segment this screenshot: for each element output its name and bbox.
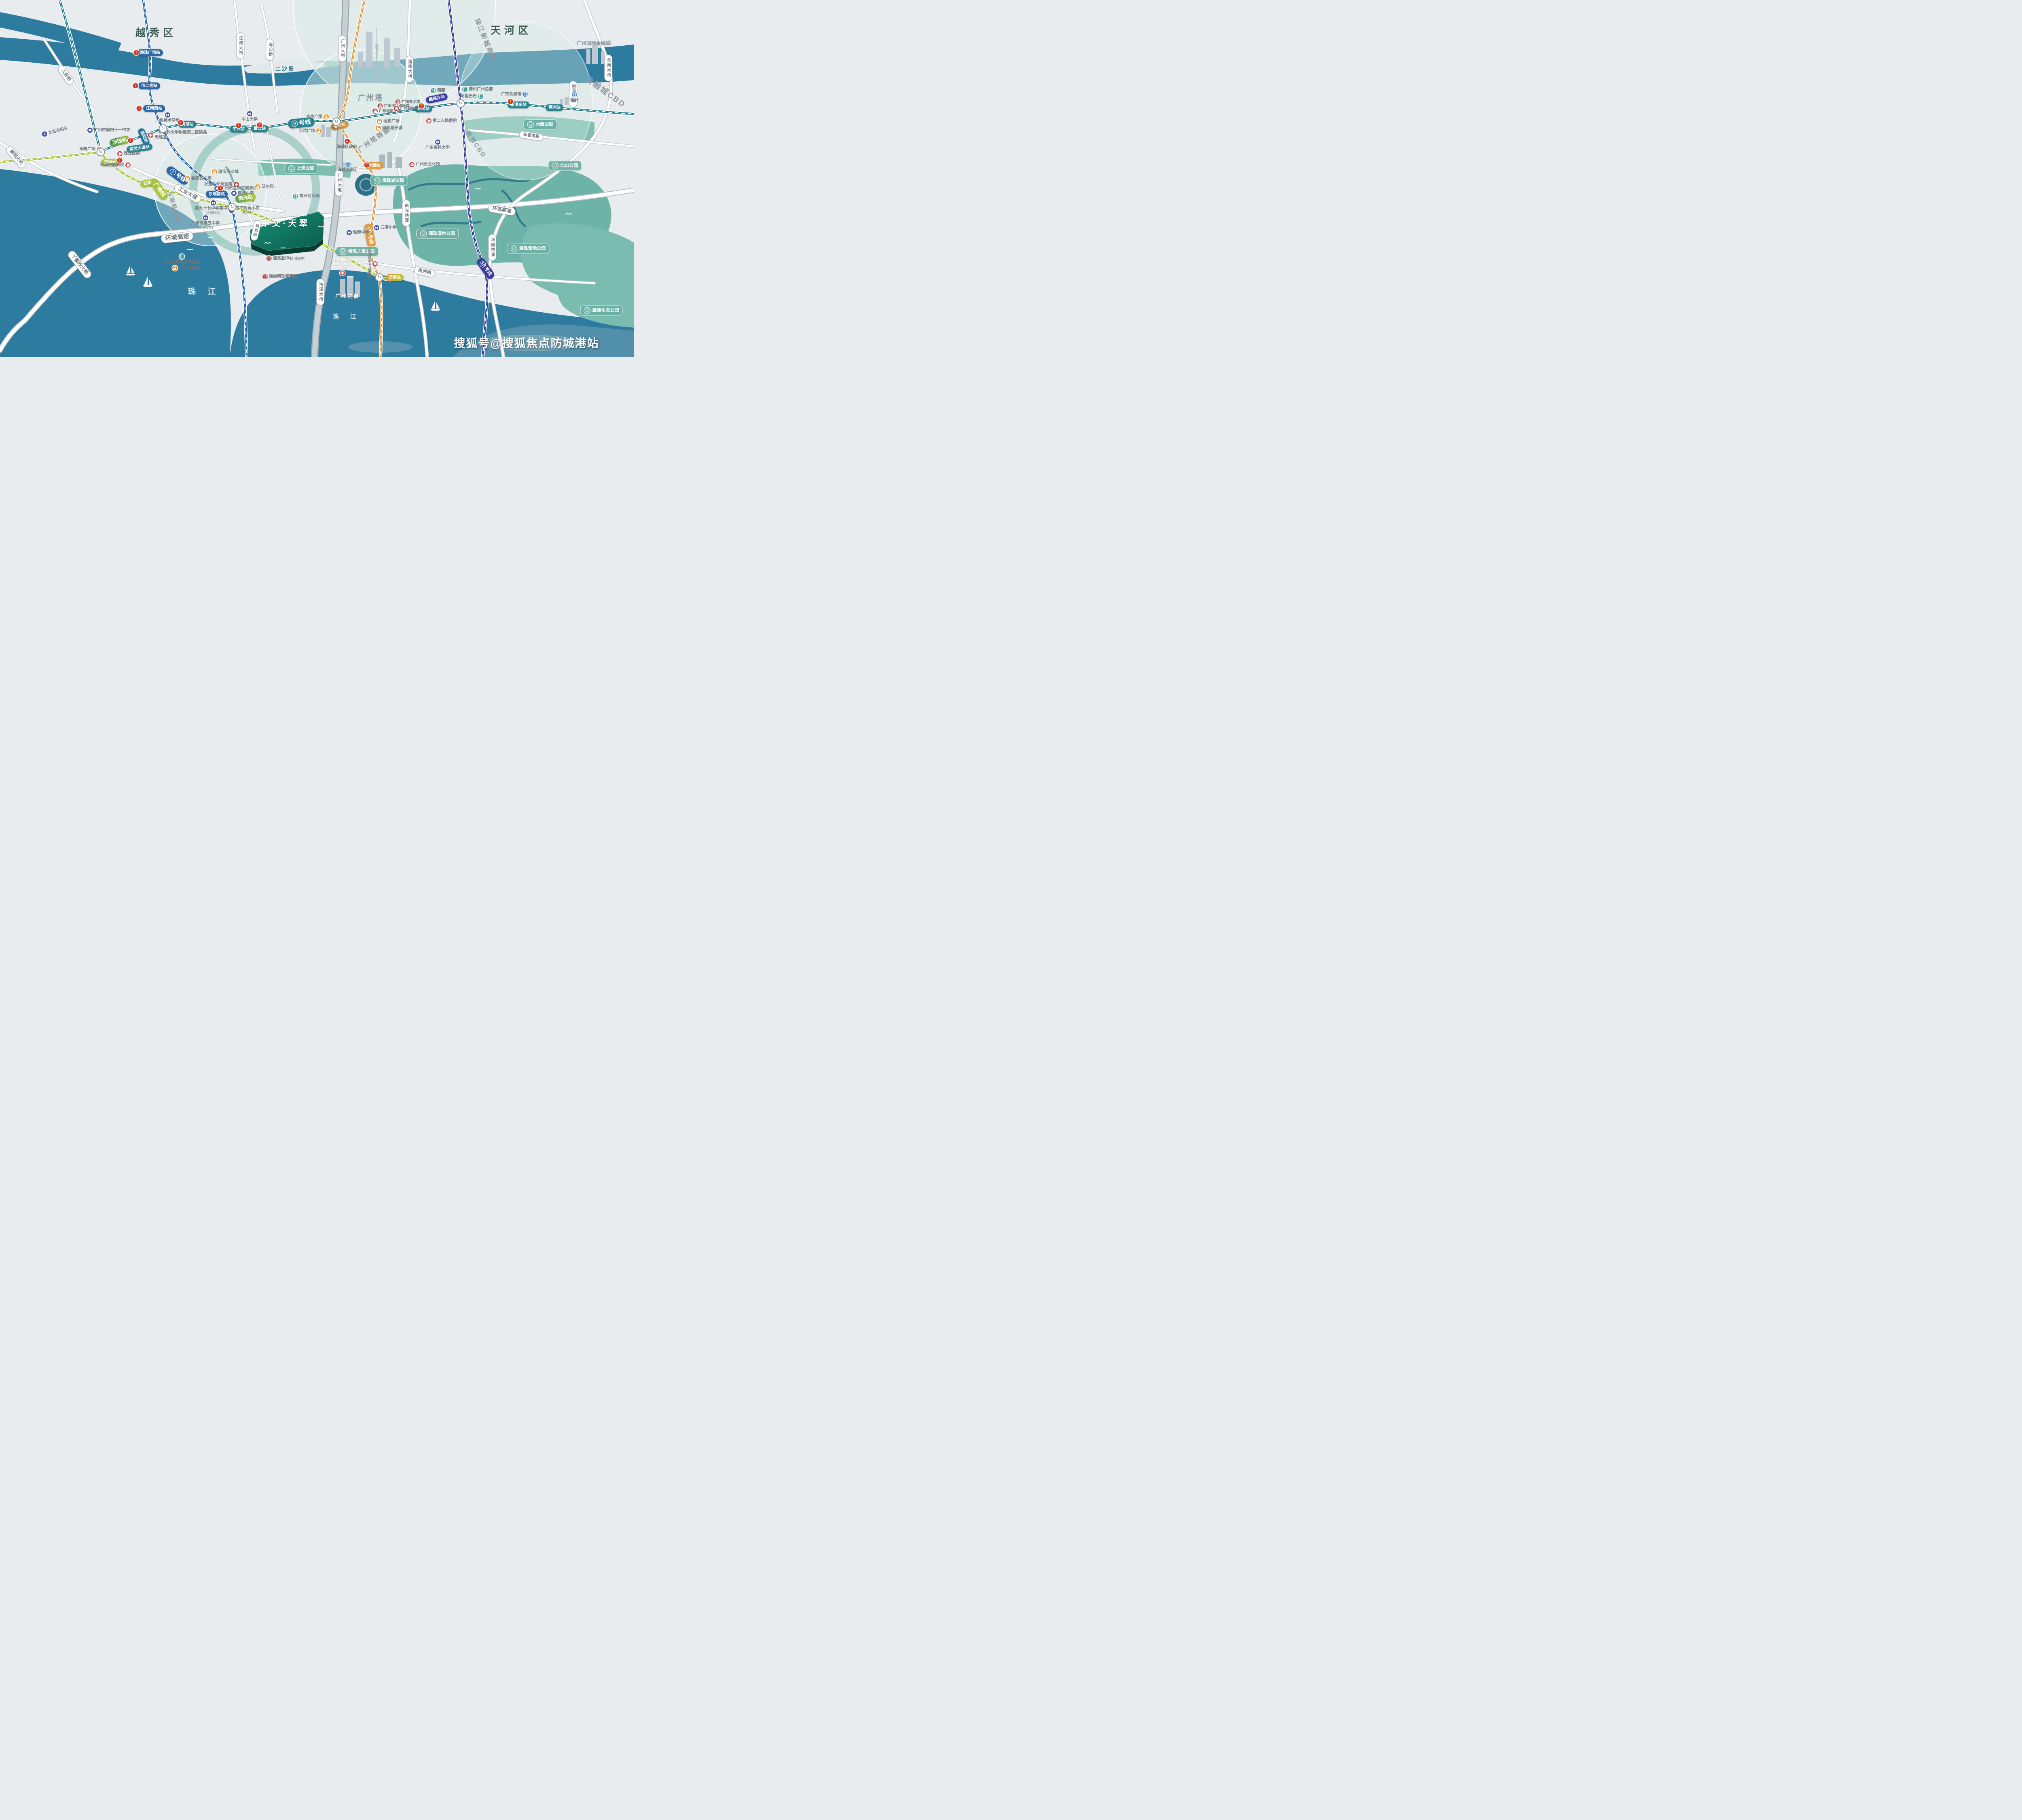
roundabout-icon: [332, 118, 341, 126]
tree-icon: [511, 245, 518, 252]
school-icon: [211, 200, 216, 205]
canton-tower-label-text: 广州塔: [357, 94, 383, 103]
road-guihua-road: 规划路: [250, 220, 262, 241]
mall-icon: [377, 119, 382, 124]
museum-icon: [372, 109, 378, 114]
poi-nanwu-primary: 南武小学: [231, 191, 254, 196]
poi-zhujiang-hospital: 珠江医院: [117, 151, 140, 157]
badge-line3-text: 号线: [367, 234, 374, 245]
road-xinguang-expwy: 新光快速: [402, 200, 410, 226]
park-haizhu-wetland-west-text: 海珠湿地公园: [429, 231, 455, 237]
poi-grandbuy-haigang-city-text: 广百海港城: [179, 266, 199, 271]
bldgteal-icon: [180, 254, 185, 259]
hospital-icon: [148, 133, 153, 138]
park-haizhu-lake: 海珠湖公园: [370, 176, 408, 186]
museum-icon: [377, 104, 383, 109]
interchange-icon: [236, 123, 241, 128]
bldgteal-icon: [462, 87, 467, 92]
poi-kaisa-center: 佳兆业中心(建设中): [266, 256, 305, 261]
watermark: 搜狐号@搜狐焦点防城港站: [454, 337, 599, 350]
interchange-icon: [134, 50, 139, 55]
tree-icon: [340, 248, 347, 255]
area-dongxiaonan-circle-text: 东晓南商圈: [166, 191, 182, 224]
poi-nanzhou-startup-park-text: 南洲创业园: [299, 194, 319, 199]
park-beishan: 北山公园: [548, 161, 582, 171]
station-shiergong: 市二宫站: [138, 83, 160, 89]
bldgblue-icon: [345, 162, 351, 167]
station-dongxiaonan: 东晓南站: [206, 191, 228, 198]
hospital-icon: [340, 270, 345, 275]
bridge-haiyin-text: 海印桥: [267, 42, 272, 57]
district-tianhe-text: 天河区: [491, 25, 532, 37]
station-dongxiaonan-text: 东晓南站: [209, 192, 225, 197]
park-yingzhou-eco: 瀛洲生态公园: [580, 306, 623, 316]
poi-qulao-middle-school-text: 劬劳中学: [353, 230, 369, 235]
bridge-yajisha: 丫髻沙大桥: [67, 249, 93, 279]
tree-icon: [288, 165, 295, 172]
park-yingzhou-eco-text: 瀛洲生态公园: [592, 308, 619, 313]
station-lijiao-text: 沥滘站: [389, 275, 401, 280]
bldgred-icon: [266, 256, 272, 261]
station-shiergong-text: 市二宫站: [141, 83, 157, 88]
road-guihua-road-text: 规划路: [252, 224, 260, 238]
mall-icon: [324, 114, 329, 120]
line-number: 8: [291, 120, 298, 127]
bridge-luoxi-text: 洛溪大桥: [318, 282, 323, 302]
area-ersha-island-text: 二沙岛: [275, 66, 295, 72]
station-jiangnanxi: 江南西站: [143, 105, 165, 112]
park-shangchong: 上涌公园: [285, 164, 318, 174]
poi-ruibao-commercial-city: 瑞宝商业城: [212, 169, 239, 175]
school-icon: [347, 230, 352, 235]
project-badge-text: 中交·天翠: [261, 219, 310, 229]
anchor-icon: [41, 131, 48, 138]
poi-sun-yat-sen-university-text: 中山大学: [241, 117, 258, 122]
bridge-huanan-text: 华南大桥: [606, 58, 611, 78]
station-baogang-avenue-text: 宝岗大道站: [129, 144, 150, 152]
bridge-hedong: 鹤洞大桥: [5, 145, 27, 169]
area-dongxiaonan-circle: 东晓南商圈: [166, 191, 182, 224]
poi-no97-high-school-subtext: (金碧校区): [195, 211, 231, 215]
bridge-guangzhou-text: 广州大桥: [340, 39, 345, 58]
park-haizhu-lake-text: 海珠湖公园: [382, 178, 404, 184]
bridge-liede: 猎德大桥: [405, 56, 413, 83]
poi-second-peoples-hospital: 第二人民医院: [426, 119, 457, 124]
station-datang-text: 大塘站: [368, 163, 380, 168]
poi-haizhu-women-children-hospital-text: 海珠区妇女儿童医院: [368, 249, 372, 278]
poi-haizhu-district-govt: 海珠区政府: [337, 139, 357, 150]
water-label-zhujiang-south-text: 珠 江: [333, 313, 361, 320]
poi-haizhu-district-govt-text: 海珠区政府: [337, 145, 357, 150]
poi-sun-yat-sen-university: 中山大学: [241, 111, 258, 122]
park-dawei-text: 大围公园: [536, 122, 554, 127]
area-gz-intl-finance-city-text: 广州国际金融城·: [577, 41, 612, 47]
bridge-jiangwan: 江湾大桥: [236, 32, 244, 59]
poi-no97-high-school-text: 第九十七中学高中部(金碧校区): [195, 206, 231, 215]
roundabout-icon: [228, 203, 237, 212]
museum-icon: [409, 162, 415, 167]
bldgteal-icon: [293, 194, 298, 199]
poi-no41-middle-school-text: 广州市第四十一中学: [94, 128, 133, 133]
badge-line8-text: 号线: [298, 119, 311, 127]
poi-kaisa-center-text: 佳兆业中心(建设中): [273, 256, 305, 261]
poi-no5-middle-school: 广州市第五中学(金碧校区): [191, 215, 220, 230]
road-huanan-expwy-text: 华南快速: [490, 238, 495, 257]
road-gongye-avenue-text: 工业大道: [177, 186, 199, 201]
badge-line18-text: 号线: [483, 267, 493, 277]
mall-icon: [212, 169, 217, 175]
road-nanzhou-road: 南洲路: [413, 266, 436, 278]
poi-sanjiao-primary: 三滘小学: [374, 225, 397, 231]
station-shayuan-text: 沙园站: [112, 137, 127, 146]
district-yuexiu: 越秀区: [135, 28, 177, 39]
poi-lefeng-plaza-text: 乐峰广场: [79, 147, 95, 152]
poi-guangdong-medical-univ: 广东医科大学: [425, 140, 450, 150]
area-gz-intl-finance-city: 广州国际金融城·: [577, 41, 612, 47]
interchange-icon: [364, 163, 370, 168]
poi-gz-culture-center: 广州市文化馆: [409, 162, 440, 167]
area-pazhou-cbd-text: 琶洲CBD: [464, 129, 488, 159]
poi-canton-fair-complex-text: 广交会展馆: [501, 92, 521, 97]
water-label-zhujiang-west-text: 珠 江: [188, 288, 221, 297]
poi-tencent-gz-hq-text: 腾讯广州总部: [469, 87, 493, 92]
interchange-icon: [419, 104, 424, 109]
poi-taikoo-wharf: 太古仓码头: [41, 126, 68, 138]
poi-wanda-plaza-text: 万达广场: [299, 129, 315, 133]
water-label-zhujiang-south: 珠 江: [333, 313, 361, 320]
poi-alibaba-text: 阿里巴巴: [461, 94, 477, 99]
poi-ruibao-commercial-city-text: 瑞宝商业城: [218, 169, 239, 174]
bridge-renmin-text: 人民桥: [60, 68, 72, 82]
road-nanzhou-road-text: 南洲路: [418, 268, 432, 276]
poi-pati-text: 琶醍: [437, 88, 445, 93]
hospital-icon: [372, 261, 378, 267]
poi-hopson-plaza-text: 合生广场: [306, 114, 322, 119]
hospital-icon: [125, 163, 131, 168]
school-icon: [374, 225, 379, 231]
interchange-icon: [137, 106, 142, 111]
museum-icon: [395, 99, 400, 105]
roundabout-icon: [375, 273, 384, 282]
station-lijiao: 沥滘站: [386, 274, 404, 281]
watermark-text: 搜狐号@搜狐焦点防城港站: [454, 337, 599, 350]
bldgteal-icon: [431, 88, 436, 93]
poi-window-of-guangzhou-text: 广州之窗: [335, 294, 360, 300]
poi-grandbuy-haigang-city: 广百海港城: [172, 266, 199, 271]
poi-nanzhou-startup-park: 南洲创业园: [293, 194, 319, 199]
poi-gz-fine-arts-academy: 广州美术学院: [155, 112, 180, 123]
poi-sun-yat-sen-hospital-haizhuwan: 孙逸仙医院海珠湾院区(在建): [332, 258, 352, 276]
poi-taikoo-wharf-text: 太古仓码头: [48, 126, 68, 135]
project-badge: 中交·天翠: [261, 219, 310, 229]
poi-no97-high-school: 第九十七中学高中部(金碧校区): [195, 200, 231, 215]
poi-alibaba: 阿里巴巴: [461, 94, 483, 99]
area-zhujiang-xincheng-circle-text: 珠江新城商圈: [473, 18, 497, 63]
poi-qulao-middle-school: 劬劳中学: [347, 230, 369, 235]
poi-pazhou: 琶洲: [570, 92, 578, 103]
poi-walmart-text: 沃尔玛: [262, 184, 274, 189]
poi-sun-yat-sen-hospital-haizhuwan-subtext: (在建): [332, 266, 352, 269]
poi-shixi-tcm-hospital: 石溪中医医院: [100, 163, 131, 168]
boat-icon: [430, 299, 441, 311]
mall-icon: [172, 266, 178, 271]
poi-big-haizhuwan-art-park: BIG海珠湾艺术园区: [164, 254, 200, 265]
park-shangchong-text: 上涌公园: [297, 166, 315, 171]
bridge-haiyin: 海印桥: [266, 39, 274, 61]
poi-nanwu-primary-text: 南武小学: [238, 191, 254, 196]
park-haizhu-wetland-west: 海珠湿地公园: [417, 229, 459, 239]
school-icon: [165, 112, 170, 118]
canton-tower-label: 广州塔: [357, 94, 383, 103]
road-xinjiao-east-road: 新窖东路: [519, 131, 544, 142]
poi-haishang-mingzhu-park-text: 海尚明珠智慧园: [269, 274, 297, 279]
poi-canton-fair-complex: 广交会展馆: [501, 92, 528, 97]
bldgblue-icon: [572, 92, 577, 97]
interchange-icon: [508, 99, 513, 104]
district-tianhe: 天河区: [491, 25, 532, 37]
tree-icon: [552, 163, 559, 169]
poi-shixi-tcm-hospital-text: 石溪中医医院: [100, 163, 124, 167]
poi-zhuying-starlight-city-text: 珠影星光城: [382, 126, 402, 131]
mall-icon: [316, 129, 321, 134]
poi-no5-middle-school-text: 广州市第五中学(金碧校区): [191, 221, 220, 230]
roundabout-icon: [457, 99, 465, 108]
park-dawei: 大围公园: [524, 120, 557, 130]
station-haizhu-square: 海珠广场站: [137, 49, 163, 56]
station-jiangnanxi-text: 江南西站: [146, 106, 162, 111]
park-haizhu-wetland-east: 海珠湿地公园: [507, 244, 550, 254]
poi-tower-south-plaza-text: 广州塔南广场: [379, 109, 401, 113]
poi-xindouhui-plaza: 新都荟广场: [185, 176, 212, 182]
bridge-hedong-text: 鹤洞大桥: [8, 149, 24, 166]
poi-wuzhong-dongxiao-school-text: 广州市五中东晓学校: [221, 186, 257, 191]
poi-hopson-plaza: 合生广场: [306, 114, 329, 120]
area-ersha-island: 二沙岛: [275, 66, 295, 72]
interchange-icon: [178, 120, 184, 125]
hospital-icon: [426, 119, 431, 124]
poi-kaisa-center-subtext: (建设中): [294, 256, 305, 260]
road-huancheng-expwy-west-text: 环城高速: [165, 233, 189, 242]
mall-icon: [185, 176, 190, 182]
road-xinguang-expwy-text: 新光快速: [404, 203, 408, 223]
poi-pati: 琶醍: [431, 88, 445, 93]
road-huancheng-expwy-east: 环城高速: [488, 204, 516, 216]
poi-haishang-mingzhu-park: 海尚明珠智慧园: [262, 274, 297, 279]
station-modiesha: 磨碟沙站: [425, 93, 448, 104]
tree-icon: [584, 307, 591, 314]
poi-gz-art-museum: 广州美术馆: [395, 99, 420, 105]
station-modiesha-text: 磨碟沙站: [428, 94, 445, 102]
bldgblue-icon: [522, 92, 528, 97]
station-changgang-text: 昌岗站: [140, 130, 149, 143]
bldgred-icon: [262, 274, 268, 279]
station-pazhou-text: 琶洲站: [548, 105, 560, 110]
poi-gz-culture-center-text: 广州市文化馆: [416, 162, 440, 167]
poi-sanjiao-primary-text: 三滘小学: [381, 225, 397, 230]
poi-wuzhong-affiliated-primary-subtext: (规划中): [235, 211, 260, 214]
poi-big-haizhuwan-art-park-text: BIG海珠湾艺术园区: [164, 260, 200, 265]
tree-icon: [420, 231, 427, 237]
school-icon: [231, 191, 237, 196]
poi-walmart: 沃尔玛: [255, 184, 274, 190]
poi-haizhu-tongchuanghui: 海珠同创汇: [338, 162, 358, 173]
school-icon: [247, 111, 252, 116]
station-xingangdong-text: 新港东站: [510, 102, 527, 107]
bridge-guangzhou: 广州大桥: [338, 35, 346, 62]
poi-no41-middle-school: 广州市第四十一中学: [87, 128, 133, 133]
poi-gz-art-museum-text: 广州美术馆: [402, 100, 420, 104]
poi-guangdong-medical-univ-text: 广东医科大学: [425, 146, 450, 150]
interchange-icon: [117, 158, 123, 163]
road-huancheng-expwy-west: 环城高速: [161, 231, 194, 243]
poi-zhujiang-hospital-text: 珠江医院: [124, 151, 140, 156]
tree-icon: [374, 178, 381, 184]
map-labels: 越秀区天河区二沙岛广州国际金融城·金融城CBD琶洲CBD珠江新城商圈广州塔商圈东…: [0, 0, 634, 357]
road-guangzhou-avenue: 广州大道: [335, 169, 343, 196]
station-shayuan: 沙园站: [109, 135, 130, 147]
bridge-liede-text: 猎德大桥: [407, 59, 412, 79]
mall-icon: [376, 126, 381, 131]
school-icon: [203, 215, 208, 220]
poi-second-peoples-hospital-text: 第二人民医院: [433, 119, 457, 123]
poi-pazhou-text: 琶洲: [570, 98, 578, 103]
mall-icon: [255, 184, 260, 190]
park-haizhu-wetland-east-text: 海珠湿地公园: [519, 246, 546, 252]
poi-wanda-plaza: 万达广场: [299, 129, 321, 134]
boat-icon: [125, 264, 136, 276]
district-yuexiu-text: 越秀区: [135, 28, 177, 39]
poi-window-of-guangzhou: 广州之窗: [335, 294, 360, 300]
water-label-zhujiang-west: 珠 江: [188, 288, 221, 297]
star-icon: [345, 139, 350, 144]
poi-haizhu-tongchuanghui-text: 海珠同创汇: [338, 168, 358, 173]
bridge-luoxi: 洛溪大桥: [316, 279, 324, 305]
interchange-icon: [128, 138, 133, 143]
roundabout-icon: [97, 148, 105, 157]
poi-liying-plaza-text: 丽影广场: [383, 119, 400, 124]
poi-liying-plaza: 丽影广场: [377, 119, 400, 124]
road-huancheng-expwy-east-text: 环城高速: [492, 205, 512, 214]
poi-sun-yat-sen-hospital-haizhuwan-text: 孙逸仙医院海珠湾院区(在建): [332, 258, 352, 270]
poi-no5-middle-school-subtext: (金碧校区): [191, 226, 220, 230]
badge-guangfo-line-text: 广佛线: [152, 182, 167, 198]
interchange-icon: [133, 83, 138, 89]
school-icon: [435, 140, 440, 145]
poi-gz-fine-arts-academy-text: 广州美术学院: [155, 119, 180, 123]
road-guangzhou-avenue-text: 广州大道: [336, 173, 341, 193]
school-icon: [87, 128, 93, 133]
poi-tencent-gz-hq: 腾讯广州总部: [462, 87, 493, 92]
road-xinjiao-east-road-text: 新窖东路: [523, 132, 539, 140]
poi-tower-south-plaza: 广州塔南广场: [372, 109, 401, 114]
area-pazhou-cbd: 琶洲CBD: [464, 129, 488, 159]
bridge-yajisha-text: 丫髻沙大桥: [70, 253, 89, 276]
badge-line2: 2号线: [165, 165, 190, 186]
poi-gzmu-2nd-hospital: 广州医科大学附属第二医院昌岗院区: [148, 131, 208, 140]
tree-icon: [527, 121, 534, 128]
road-huanan-expwy: 华南快速: [488, 234, 496, 261]
bridge-jiangwan-text: 江湾大桥: [238, 36, 243, 55]
interchange-icon: [257, 123, 262, 128]
bldgteal-icon: [478, 94, 483, 99]
park-beishan-text: 北山公园: [560, 163, 578, 169]
poi-gz-science-museum-text: 广州科学馆: [400, 106, 418, 110]
poi-zhuying-starlight-city: 珠影星光城: [376, 126, 402, 131]
boat-icon: [143, 275, 153, 288]
bridge-renmin: 人民桥: [57, 64, 75, 86]
badge-guangfo-line: 广佛线: [149, 178, 169, 202]
roundabout-icon: [159, 125, 167, 133]
poi-wuzhong-affiliated-primary-text: 五中附属小学(规划中): [235, 206, 260, 215]
station-pazhou: 琶洲站: [546, 104, 563, 111]
area-zhujiang-xincheng-circle: 珠江新城商圈: [473, 18, 497, 63]
map-canvas: 越秀区天河区二沙岛广州国际金融城·金融城CBD琶洲CBD珠江新城商圈广州塔商圈东…: [0, 0, 634, 357]
bridge-huanan: 华南大桥: [604, 55, 612, 81]
interchange-icon: [218, 186, 223, 191]
station-haizhu-square-text: 海珠广场站: [140, 50, 160, 55]
hospital-icon: [117, 151, 123, 157]
poi-xindouhui-plaza-text: 新都荟广场: [191, 176, 212, 181]
